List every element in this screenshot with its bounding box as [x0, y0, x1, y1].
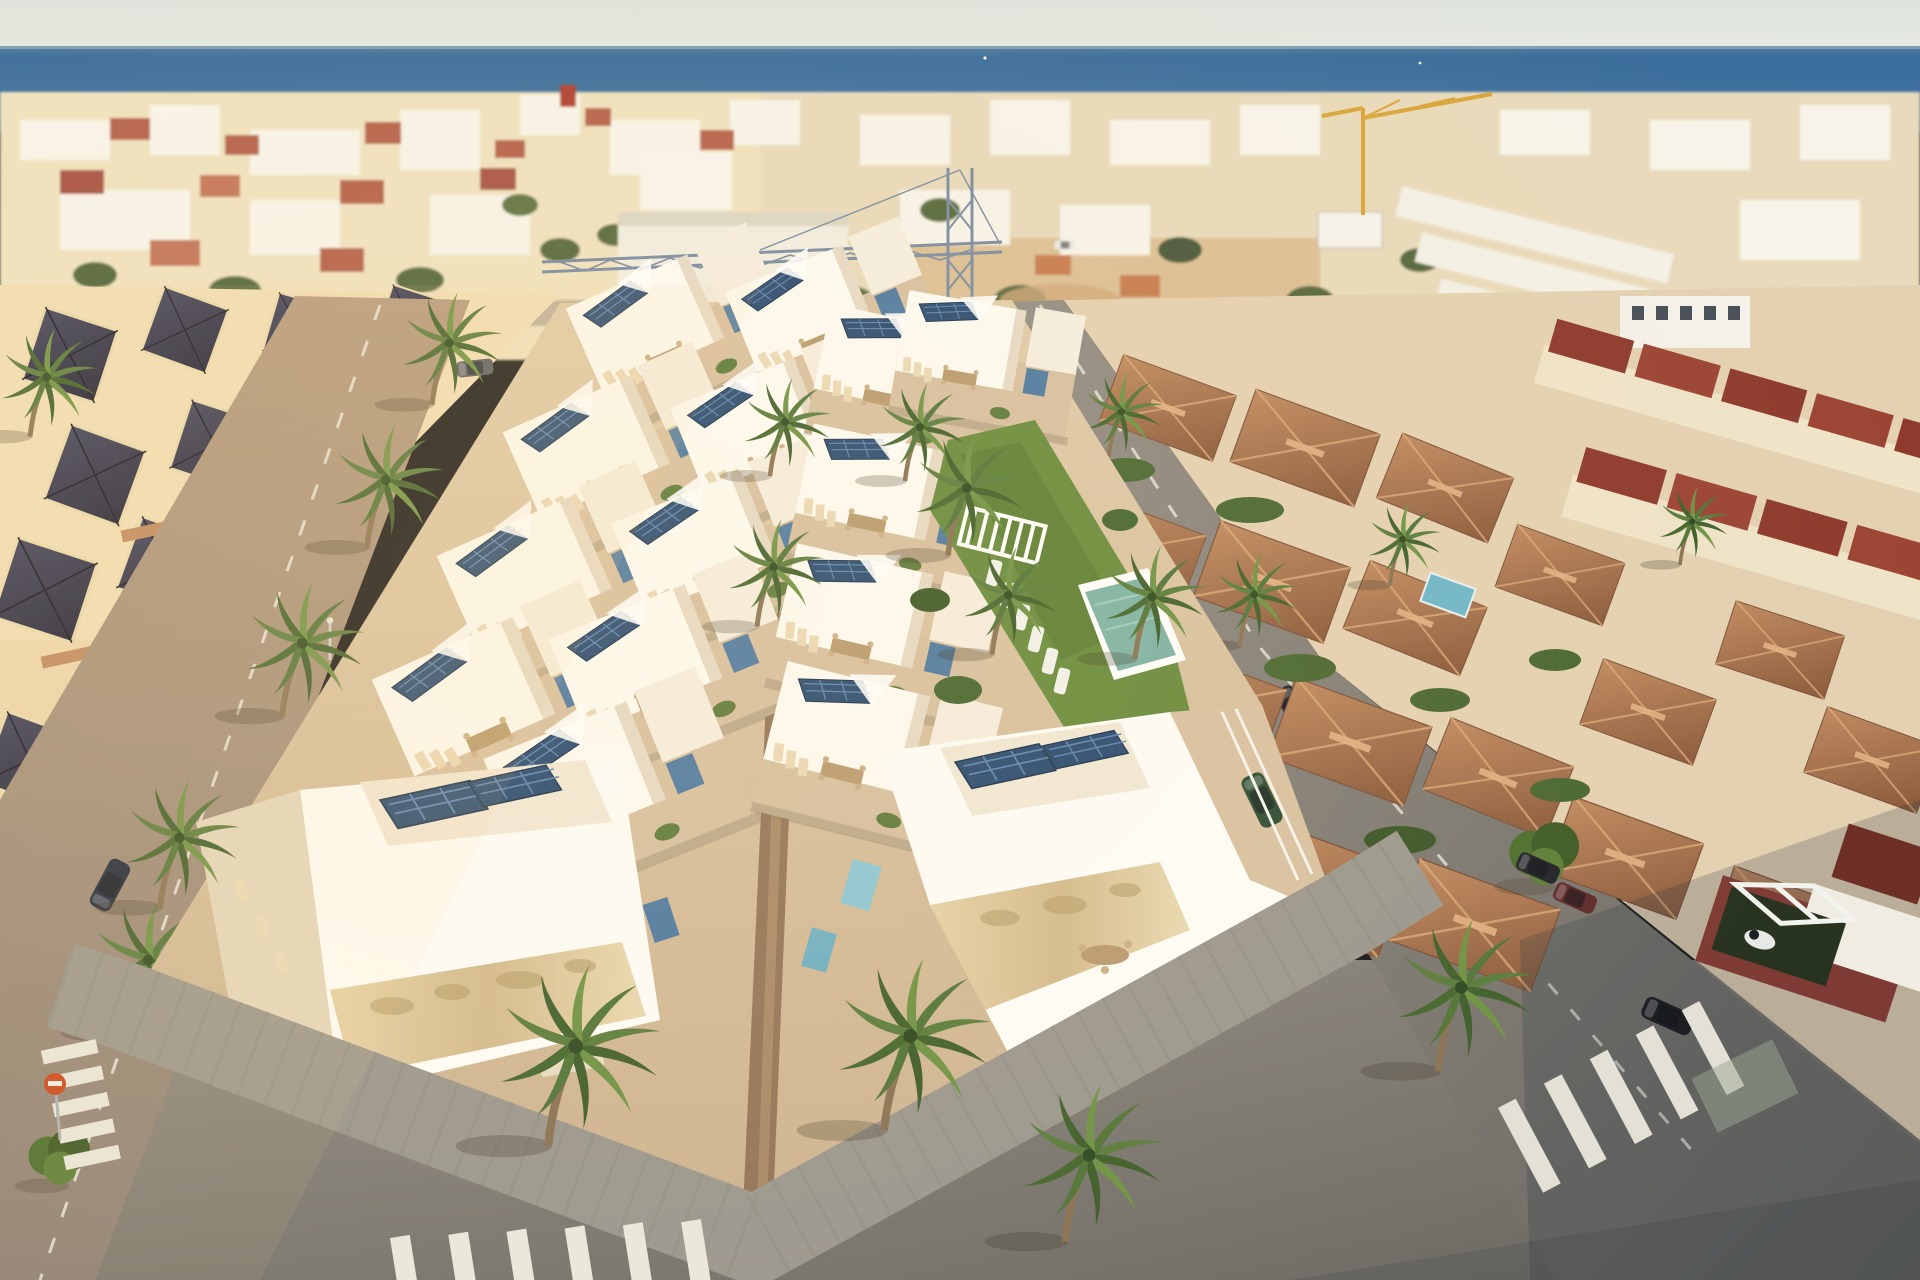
scene-canvas — [0, 0, 1920, 1280]
aerial-render-image — [0, 0, 1920, 1280]
